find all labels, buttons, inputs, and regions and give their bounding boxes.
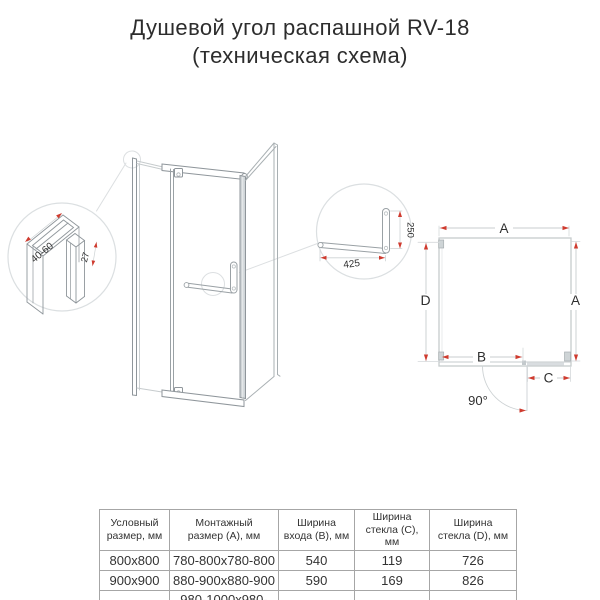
plan-square bbox=[439, 238, 571, 366]
table-cell: 800x800 bbox=[100, 550, 170, 570]
table-header-nominal-size: Условный размер, мм bbox=[100, 510, 170, 551]
table-cell: 880-900x880-900 bbox=[170, 570, 279, 590]
leader-line-handle bbox=[240, 244, 318, 273]
bottom-rail bbox=[162, 390, 244, 407]
plan-view: A D A B C 90° bbox=[417, 221, 584, 413]
table-row: 800x800 780-800x780-800 540 119 726 bbox=[100, 550, 517, 570]
table-cell: 980-1000x980-1000 bbox=[170, 590, 279, 600]
door-stile bbox=[171, 169, 174, 393]
table-cell: 269 bbox=[355, 590, 430, 600]
table-cell: 590 bbox=[279, 570, 355, 590]
schematic-page: Душевой угол распашной RV-18 (техническа… bbox=[0, 0, 600, 600]
handle-sketch bbox=[320, 243, 386, 254]
plan-dim-b: B bbox=[477, 350, 486, 365]
table-cell: 169 bbox=[355, 570, 430, 590]
wall-profile-detail: 40-60 27 bbox=[8, 203, 116, 314]
profile-depth-label: 27 bbox=[79, 251, 91, 263]
table-header-entrance-width: Ширина входа (B), мм bbox=[279, 510, 355, 551]
wall-profile-left bbox=[133, 158, 137, 396]
table-row: 900x900 880-900x880-900 590 169 826 bbox=[100, 570, 517, 590]
table-header-row: Условный размер, мм Монтажный размер (A)… bbox=[100, 510, 517, 551]
table-header-glass-c-width: Ширина стекла (C), мм bbox=[355, 510, 430, 551]
plan-dim-d: D bbox=[420, 292, 430, 308]
table-header-glass-d-width: Ширина стекла (D), мм bbox=[430, 510, 517, 551]
door-swing-arc bbox=[483, 366, 528, 411]
table-cell: 826 bbox=[430, 570, 517, 590]
dim-line-40-60 bbox=[28, 214, 62, 242]
table-cell: 780-800x780-800 bbox=[170, 550, 279, 570]
plan-glass-c bbox=[527, 362, 564, 365]
detail-circle-profile bbox=[8, 203, 116, 311]
plan-door-angle: 90° bbox=[468, 393, 488, 408]
vertical-handle bbox=[231, 262, 238, 293]
size-table: Условный размер, мм Монтажный размер (A)… bbox=[99, 509, 517, 600]
handle-height-label: 250 bbox=[405, 222, 416, 238]
table-cell: 900x900 bbox=[100, 570, 170, 590]
table-cell: 119 bbox=[355, 550, 430, 570]
table-cell: 590 bbox=[279, 590, 355, 600]
main-enclosure-drawing bbox=[97, 143, 318, 407]
table-cell: 726 bbox=[430, 550, 517, 570]
leader-line-profile bbox=[97, 163, 127, 211]
plan-dim-a-top: A bbox=[499, 221, 508, 236]
towel-bar-cap bbox=[184, 283, 189, 288]
side-panel bbox=[246, 143, 281, 401]
towel-bar bbox=[186, 283, 232, 293]
table-cell: 1000x1000 bbox=[100, 590, 170, 600]
fixed-panel-glass bbox=[137, 161, 163, 392]
table-cell: 540 bbox=[279, 550, 355, 570]
plan-dim-c: C bbox=[544, 371, 554, 386]
detail-circle-handle bbox=[317, 184, 412, 279]
handle-detail: 250 425 bbox=[317, 184, 416, 279]
plan-dim-a-right: A bbox=[571, 293, 580, 308]
bar-length-label: 425 bbox=[343, 258, 361, 271]
table-row: 1000x1000 980-1000x980-1000 590 269 926 bbox=[100, 590, 517, 600]
table-header-mount-size: Монтажный размер (A), мм bbox=[170, 510, 279, 551]
bar-cap bbox=[318, 242, 323, 247]
table-cell: 926 bbox=[430, 590, 517, 600]
